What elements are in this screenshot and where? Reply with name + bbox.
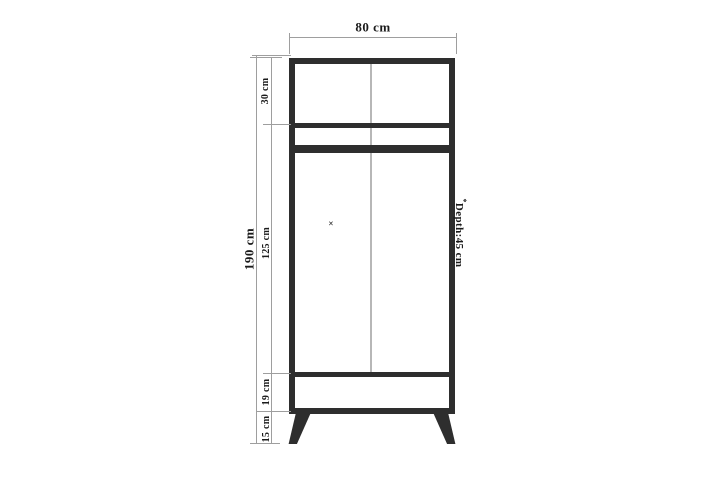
- width-dimension-tick-left: [289, 33, 290, 54]
- left-leg: [286, 413, 312, 444]
- main-section-label: 125 cm: [262, 227, 272, 259]
- wardrobe-dimension-diagram: × 80 cm 190 cm 30 cm 125 cm 19 cm 15 cm …: [0, 0, 720, 480]
- drawer-section-divider: [295, 372, 449, 377]
- legs-section-label: 15 cm: [262, 416, 272, 443]
- width-dimension-line: [289, 37, 457, 38]
- width-dimension-label: 80 cm: [355, 21, 390, 34]
- tick-bottom: [250, 443, 280, 444]
- tick-125cm-boundary: [263, 373, 291, 374]
- tick-30cm-boundary: [263, 124, 291, 125]
- tick-19cm-boundary: [256, 411, 291, 412]
- width-dimension-tick-right: [456, 33, 457, 54]
- wardrobe-outline: [289, 58, 455, 414]
- total-height-label: 190 cm: [243, 228, 256, 270]
- drawer-section-label: 19 cm: [262, 379, 272, 406]
- top-section-label: 30 cm: [261, 78, 271, 105]
- right-leg: [432, 413, 458, 444]
- depth-label: *Depth:45 cm: [453, 199, 467, 268]
- top-section-divider: [295, 123, 449, 128]
- extension-line-top: [252, 55, 291, 56]
- tick-top: [250, 57, 282, 58]
- depth-label-text: Depth:45 cm: [453, 203, 465, 268]
- shelf-band-divider: [295, 145, 449, 153]
- door-knob-mark: ×: [328, 220, 333, 229]
